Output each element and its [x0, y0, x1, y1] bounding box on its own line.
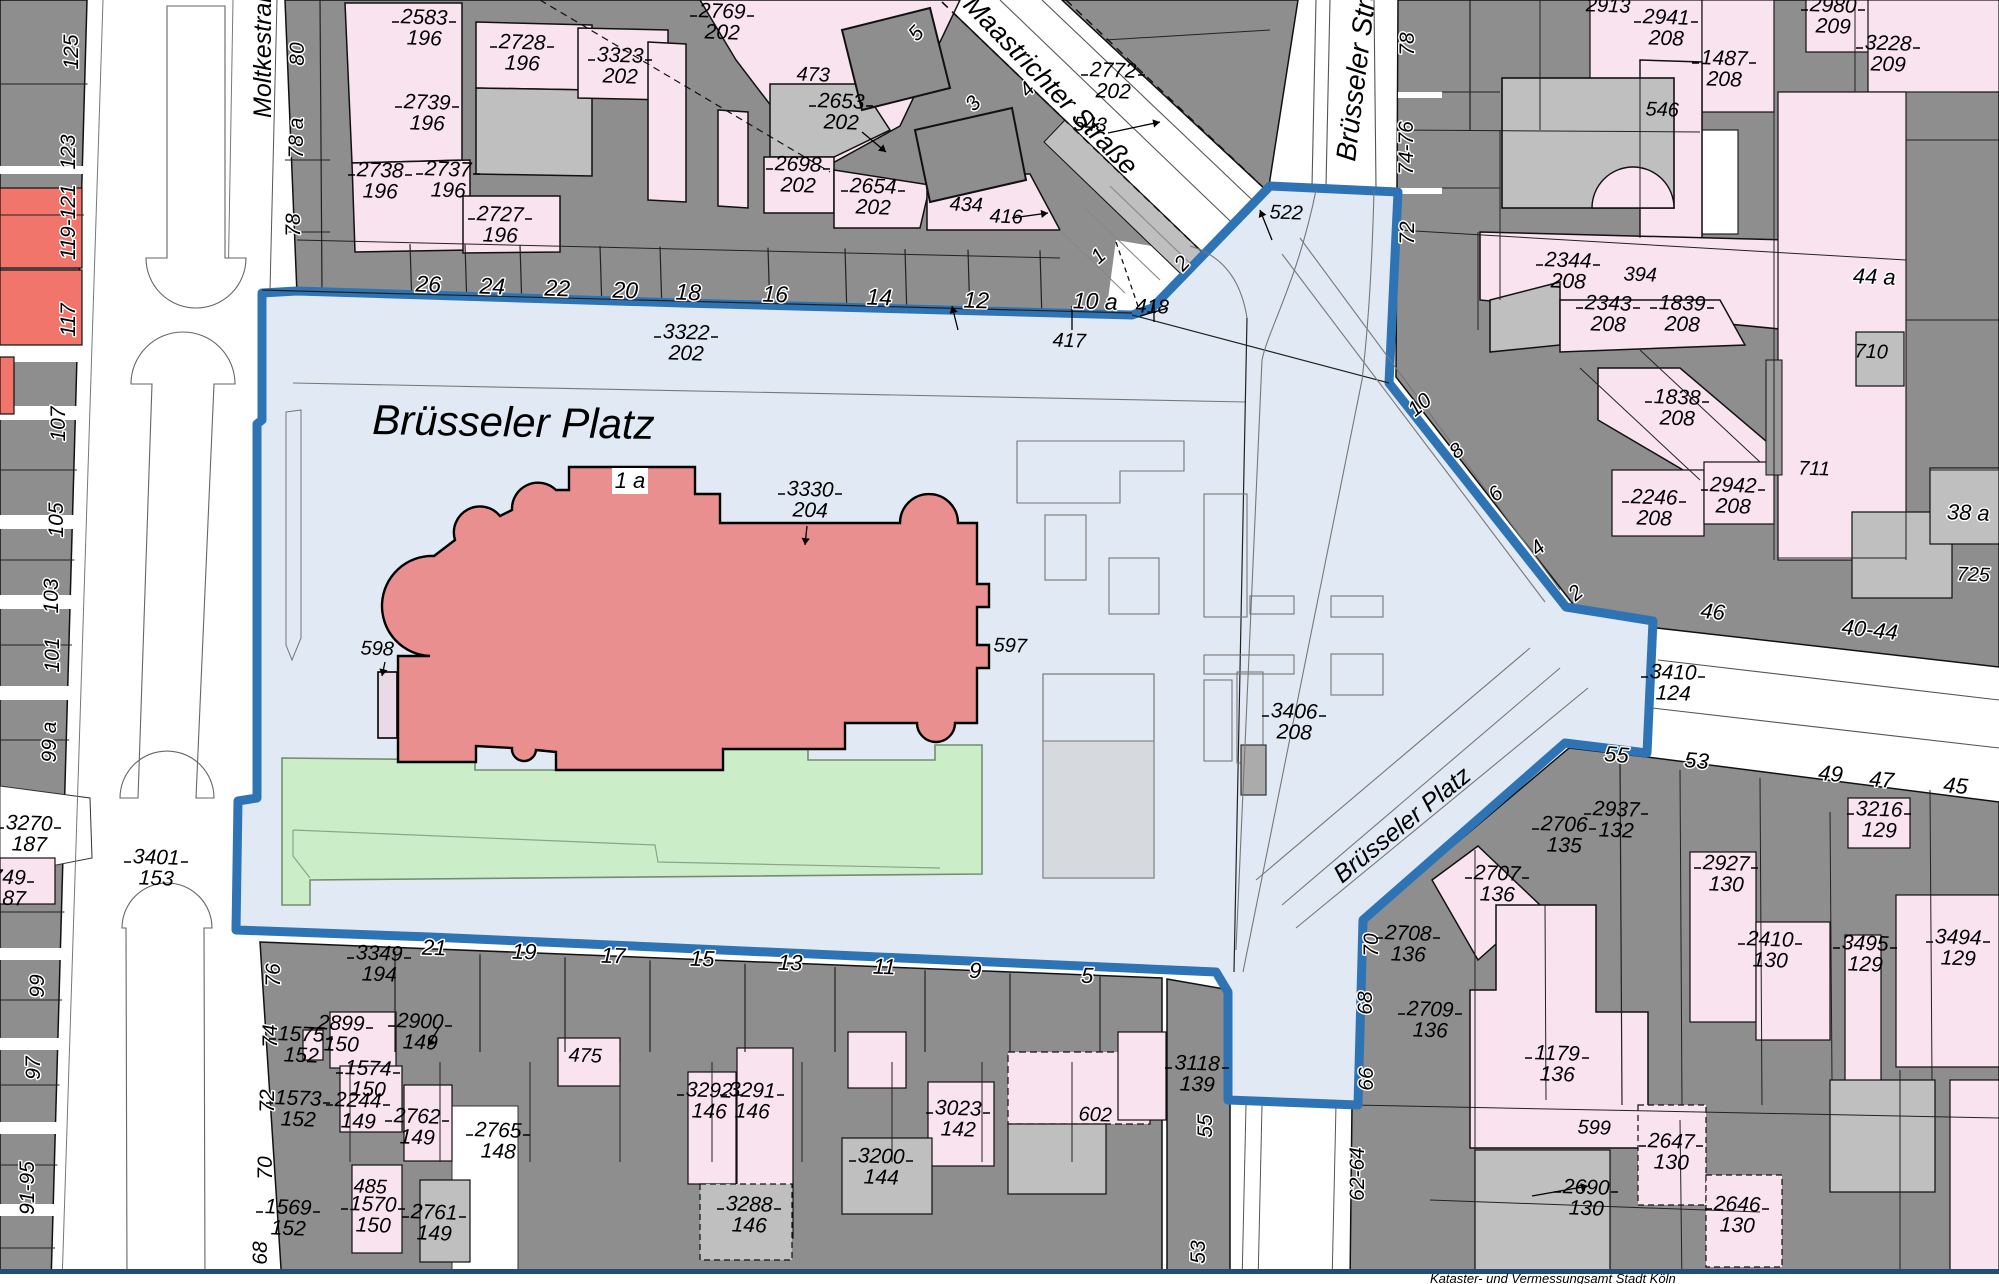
- svg-text:473: 473: [796, 63, 830, 86]
- svg-text:130: 130: [1568, 1196, 1604, 1220]
- svg-text:204: 204: [791, 498, 828, 522]
- svg-text:130: 130: [1719, 1213, 1755, 1237]
- svg-text:543: 543: [1073, 113, 1107, 136]
- svg-text:68: 68: [1354, 991, 1377, 1015]
- svg-text:91-95: 91-95: [16, 1161, 39, 1215]
- svg-text:139: 139: [1179, 1072, 1215, 1096]
- svg-text:47: 47: [1868, 766, 1895, 793]
- svg-text:194: 194: [361, 962, 397, 986]
- svg-text:417: 417: [1052, 329, 1087, 352]
- svg-text:15: 15: [690, 946, 716, 972]
- svg-text:208: 208: [1658, 406, 1695, 430]
- svg-text:208: 208: [1589, 312, 1626, 336]
- svg-text:19: 19: [512, 939, 537, 965]
- svg-text:546: 546: [1645, 98, 1680, 121]
- svg-text:202: 202: [822, 110, 859, 134]
- svg-text:208: 208: [1635, 506, 1672, 530]
- svg-text:2913: 2913: [1585, 0, 1631, 18]
- svg-text:209: 209: [1869, 52, 1906, 76]
- svg-text:149: 149: [399, 1125, 435, 1149]
- svg-text:129: 129: [1847, 952, 1883, 976]
- svg-text:68: 68: [249, 1241, 272, 1265]
- svg-text:124: 124: [1655, 681, 1691, 705]
- svg-text:130: 130: [1653, 1150, 1689, 1174]
- svg-text:26: 26: [414, 271, 442, 298]
- svg-text:597: 597: [993, 634, 1028, 657]
- svg-text:5: 5: [1081, 963, 1095, 988]
- svg-text:202: 202: [779, 173, 816, 197]
- svg-text:146: 146: [734, 1099, 770, 1123]
- svg-text:130: 130: [1752, 948, 1788, 972]
- svg-text:44 a: 44 a: [1852, 263, 1896, 289]
- svg-text:103: 103: [40, 578, 63, 613]
- svg-text:18: 18: [675, 279, 702, 306]
- svg-text:202: 202: [1094, 79, 1131, 103]
- svg-text:418: 418: [1135, 295, 1169, 318]
- svg-text:149: 149: [402, 1030, 438, 1054]
- svg-text:105: 105: [45, 502, 68, 537]
- svg-text:150: 150: [355, 1213, 391, 1237]
- svg-text:208: 208: [1705, 67, 1742, 91]
- svg-text:78: 78: [1396, 32, 1419, 56]
- svg-text:74-76: 74-76: [1395, 121, 1418, 175]
- svg-text:152: 152: [280, 1107, 316, 1131]
- svg-text:209: 209: [1814, 14, 1851, 38]
- svg-text:202: 202: [667, 341, 704, 365]
- svg-text:136: 136: [1412, 1018, 1448, 1042]
- svg-text:22: 22: [543, 275, 571, 302]
- svg-text:101: 101: [41, 637, 64, 672]
- svg-text:99 a: 99 a: [38, 722, 61, 763]
- svg-text:136: 136: [1479, 882, 1515, 906]
- svg-text:53: 53: [1683, 747, 1710, 774]
- svg-text:1 a: 1 a: [615, 468, 646, 493]
- svg-text:187: 187: [11, 832, 48, 856]
- svg-text:70: 70: [1360, 933, 1383, 957]
- svg-text:132: 132: [1598, 818, 1634, 842]
- svg-text:196: 196: [430, 178, 466, 202]
- svg-text:76: 76: [262, 963, 285, 987]
- svg-text:196: 196: [406, 26, 442, 50]
- svg-text:475: 475: [568, 1044, 603, 1067]
- svg-text:522: 522: [1269, 201, 1303, 224]
- svg-text:117: 117: [57, 302, 80, 337]
- svg-text:136: 136: [1390, 942, 1426, 966]
- svg-text:598: 598: [360, 637, 394, 660]
- svg-text:196: 196: [504, 51, 540, 75]
- svg-text:149: 149: [340, 1109, 376, 1133]
- svg-text:125: 125: [60, 34, 83, 69]
- svg-text:70: 70: [254, 1156, 277, 1180]
- svg-text:9: 9: [969, 958, 982, 983]
- svg-text:55: 55: [1194, 1114, 1217, 1138]
- svg-text:148: 148: [480, 1139, 516, 1163]
- svg-text:12: 12: [963, 287, 990, 314]
- svg-text:78 a: 78 a: [285, 118, 308, 159]
- svg-text:136: 136: [1539, 1062, 1575, 1086]
- svg-text:14: 14: [866, 284, 892, 311]
- svg-text:Moltkestraße: Moltkestraße: [249, 0, 277, 118]
- svg-text:153: 153: [138, 866, 174, 890]
- svg-text:11: 11: [872, 954, 896, 980]
- svg-text:142: 142: [940, 1117, 976, 1141]
- svg-text:46: 46: [1699, 598, 1727, 626]
- svg-text:711: 711: [1798, 457, 1831, 480]
- svg-text:Brüsseler Platz: Brüsseler Platz: [372, 396, 655, 448]
- svg-text:62-64: 62-64: [1346, 1147, 1369, 1201]
- svg-text:208: 208: [1663, 312, 1700, 336]
- svg-text:Kataster- und Vermessungsamt S: Kataster- und Vermessungsamt Stadt Köln: [1430, 1271, 1676, 1284]
- svg-text:99: 99: [26, 974, 49, 998]
- svg-text:78: 78: [282, 213, 305, 237]
- svg-text:129: 129: [1861, 818, 1897, 842]
- svg-text:196: 196: [409, 111, 445, 135]
- svg-text:146: 146: [691, 1099, 727, 1123]
- svg-text:208: 208: [1275, 720, 1312, 744]
- svg-text:202: 202: [854, 195, 891, 219]
- svg-text:123: 123: [57, 134, 80, 169]
- svg-text:187: 187: [0, 886, 27, 910]
- svg-text:45: 45: [1942, 772, 1969, 799]
- svg-text:196: 196: [482, 223, 518, 247]
- svg-text:53: 53: [1187, 1240, 1210, 1264]
- svg-text:394: 394: [1623, 263, 1657, 286]
- svg-text:202: 202: [601, 64, 638, 88]
- svg-text:196: 196: [362, 179, 398, 203]
- svg-text:119-121: 119-121: [57, 184, 80, 260]
- svg-text:129: 129: [1940, 946, 1976, 970]
- svg-text:10 a: 10 a: [1072, 287, 1118, 315]
- svg-text:135: 135: [1546, 833, 1582, 857]
- svg-text:599: 599: [1577, 1116, 1611, 1139]
- svg-text:710: 710: [1854, 340, 1888, 363]
- svg-text:725: 725: [1956, 563, 1991, 586]
- svg-text:97: 97: [22, 1055, 45, 1080]
- svg-text:150: 150: [323, 1032, 359, 1056]
- svg-text:24: 24: [478, 273, 505, 300]
- svg-text:80: 80: [286, 42, 309, 66]
- svg-text:55: 55: [1603, 741, 1630, 768]
- svg-text:49: 49: [1817, 760, 1844, 787]
- svg-text:72: 72: [1396, 221, 1419, 245]
- svg-text:144: 144: [863, 1165, 899, 1189]
- svg-text:602: 602: [1078, 1103, 1112, 1126]
- svg-text:485: 485: [353, 1175, 388, 1198]
- svg-text:152: 152: [270, 1216, 306, 1240]
- svg-text:17: 17: [601, 943, 627, 969]
- svg-text:107: 107: [47, 405, 70, 441]
- svg-text:38 a: 38 a: [1946, 499, 1990, 525]
- svg-text:208: 208: [1549, 269, 1586, 293]
- svg-text:208: 208: [1647, 26, 1684, 50]
- svg-text:434: 434: [949, 193, 983, 216]
- svg-text:16: 16: [762, 281, 789, 308]
- svg-text:208: 208: [1714, 494, 1751, 518]
- svg-text:146: 146: [731, 1213, 767, 1237]
- svg-text:149: 149: [416, 1221, 452, 1245]
- svg-text:66: 66: [1355, 1067, 1378, 1091]
- svg-text:13: 13: [778, 950, 804, 976]
- svg-text:416: 416: [989, 205, 1024, 228]
- svg-text:152: 152: [283, 1043, 319, 1067]
- svg-text:202: 202: [703, 20, 740, 44]
- svg-text:20: 20: [611, 277, 639, 304]
- svg-text:130: 130: [1708, 872, 1744, 896]
- svg-text:21: 21: [421, 935, 447, 961]
